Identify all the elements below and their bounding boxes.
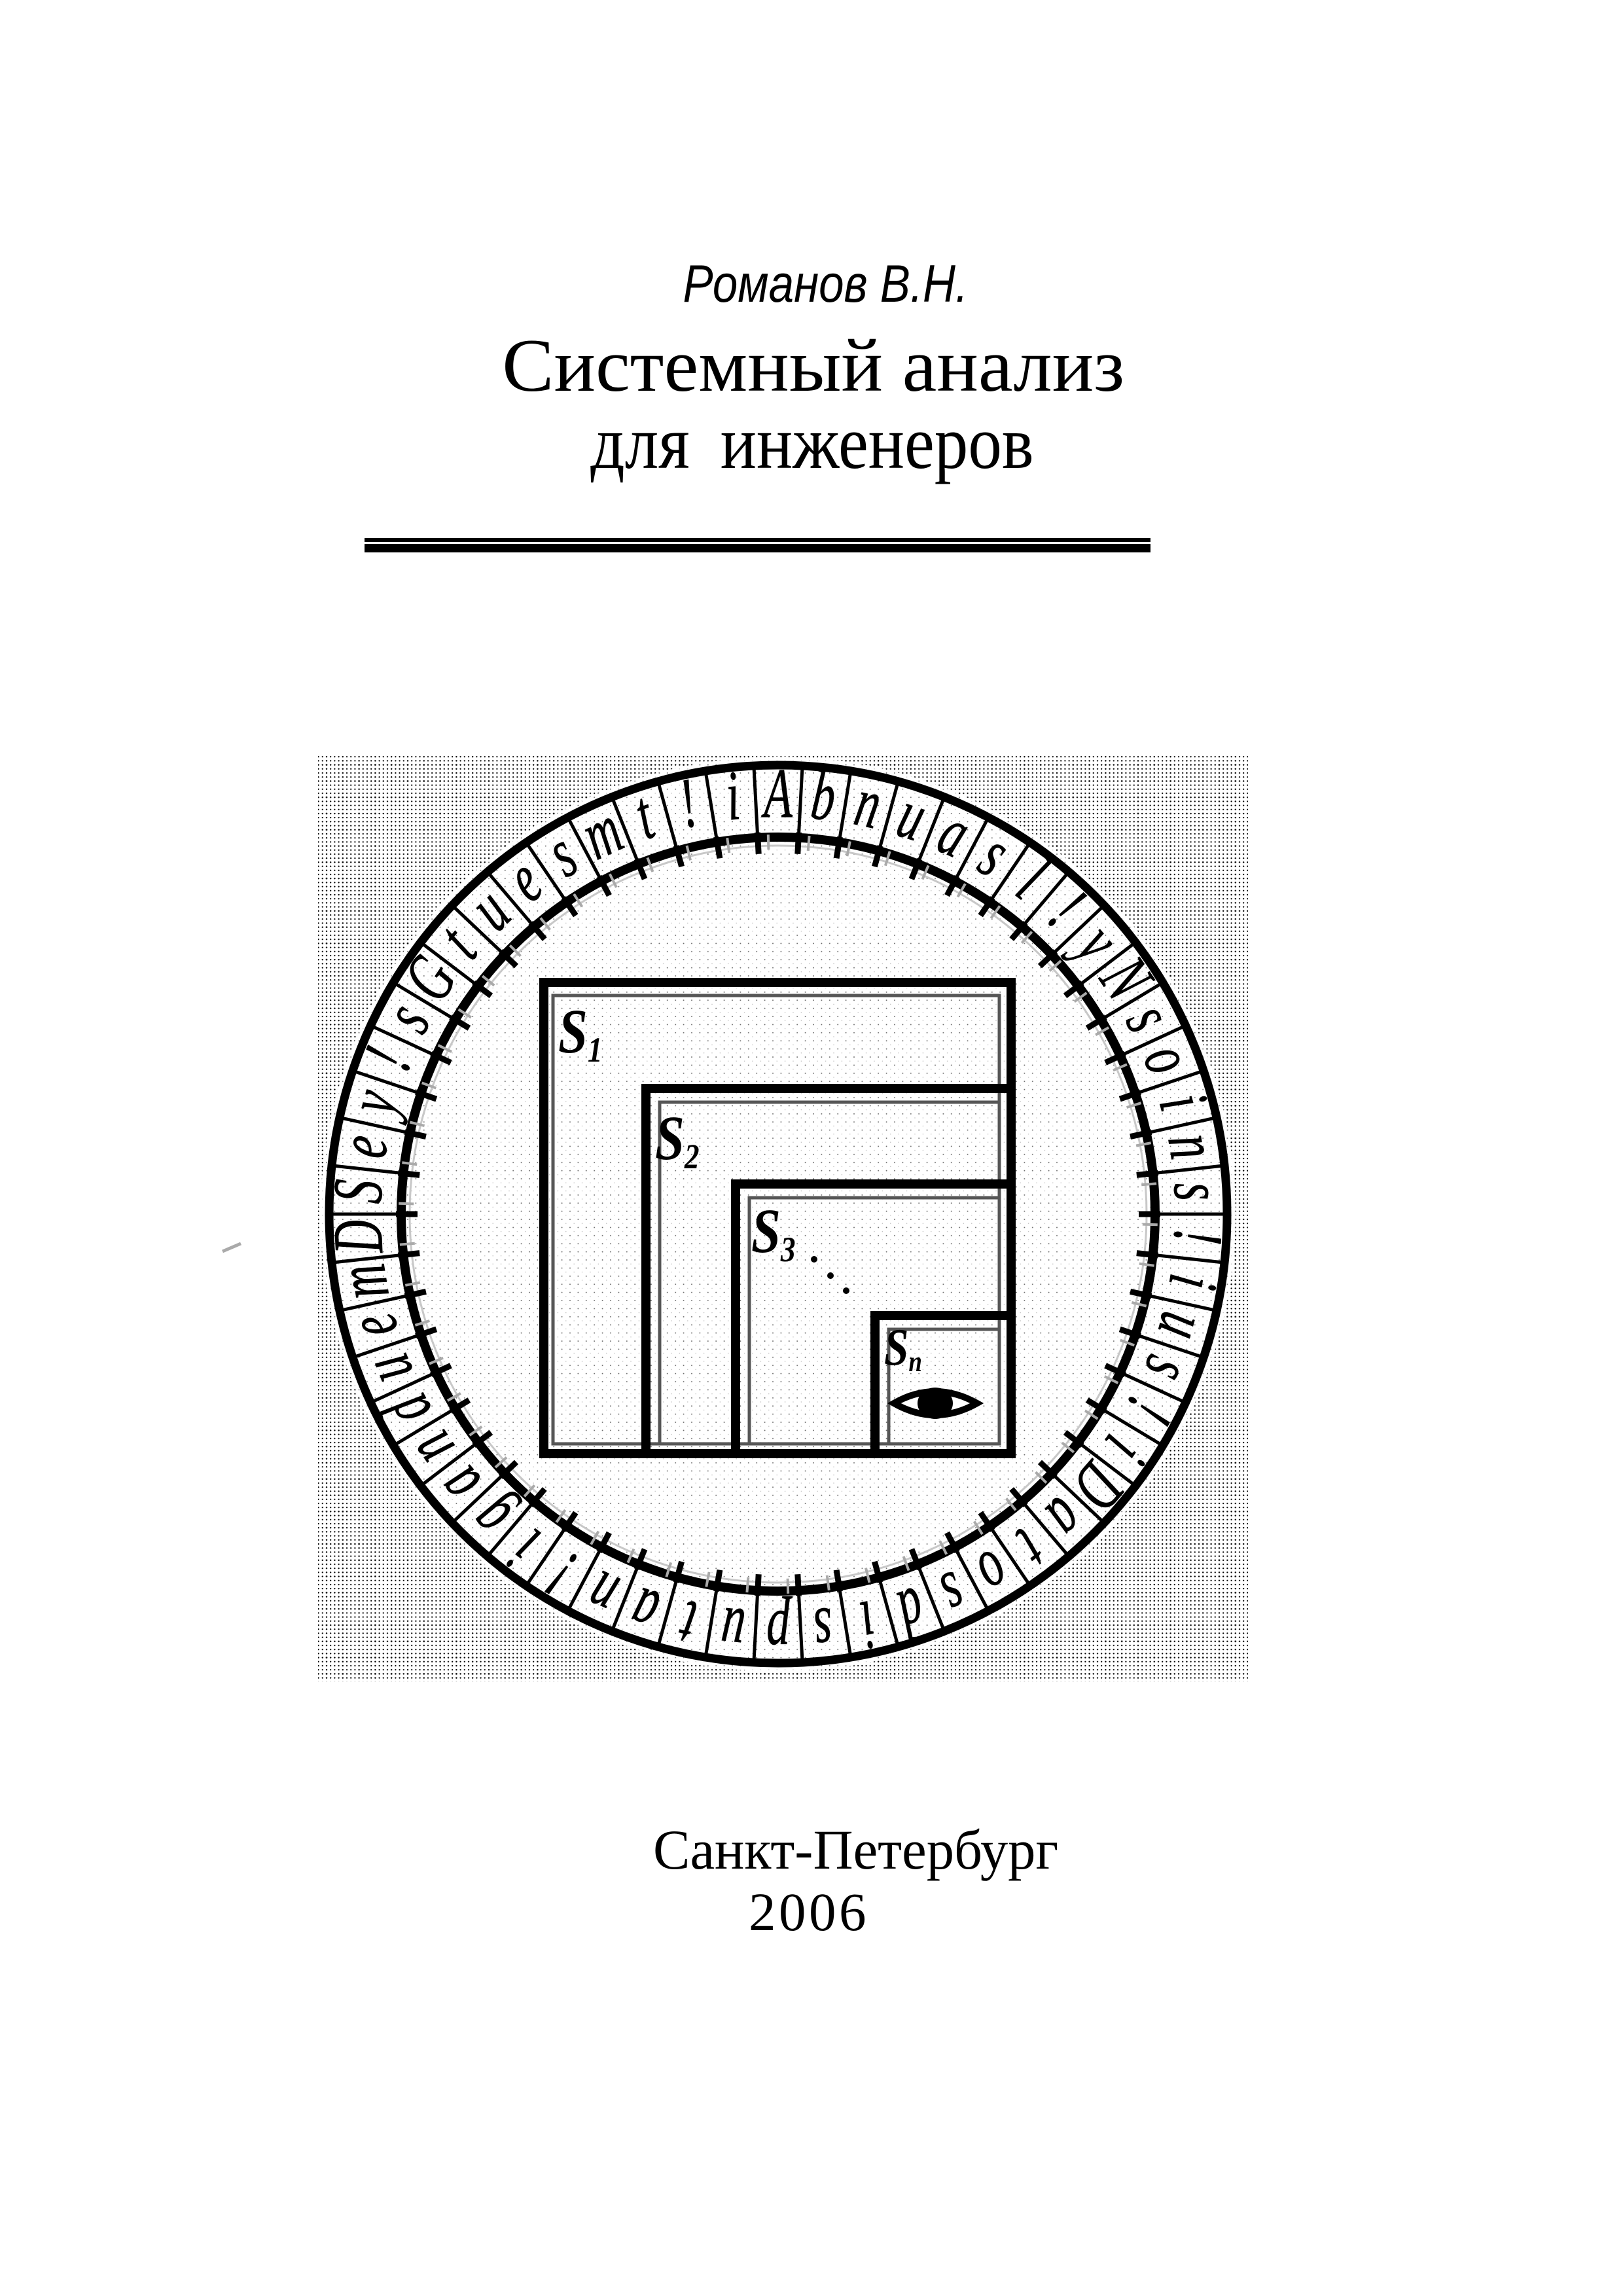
svg-text:D: D: [317, 1218, 398, 1257]
svg-text:S: S: [317, 1177, 397, 1205]
svg-text:p: p: [766, 1596, 793, 1674]
svg-text:A: A: [761, 753, 793, 832]
